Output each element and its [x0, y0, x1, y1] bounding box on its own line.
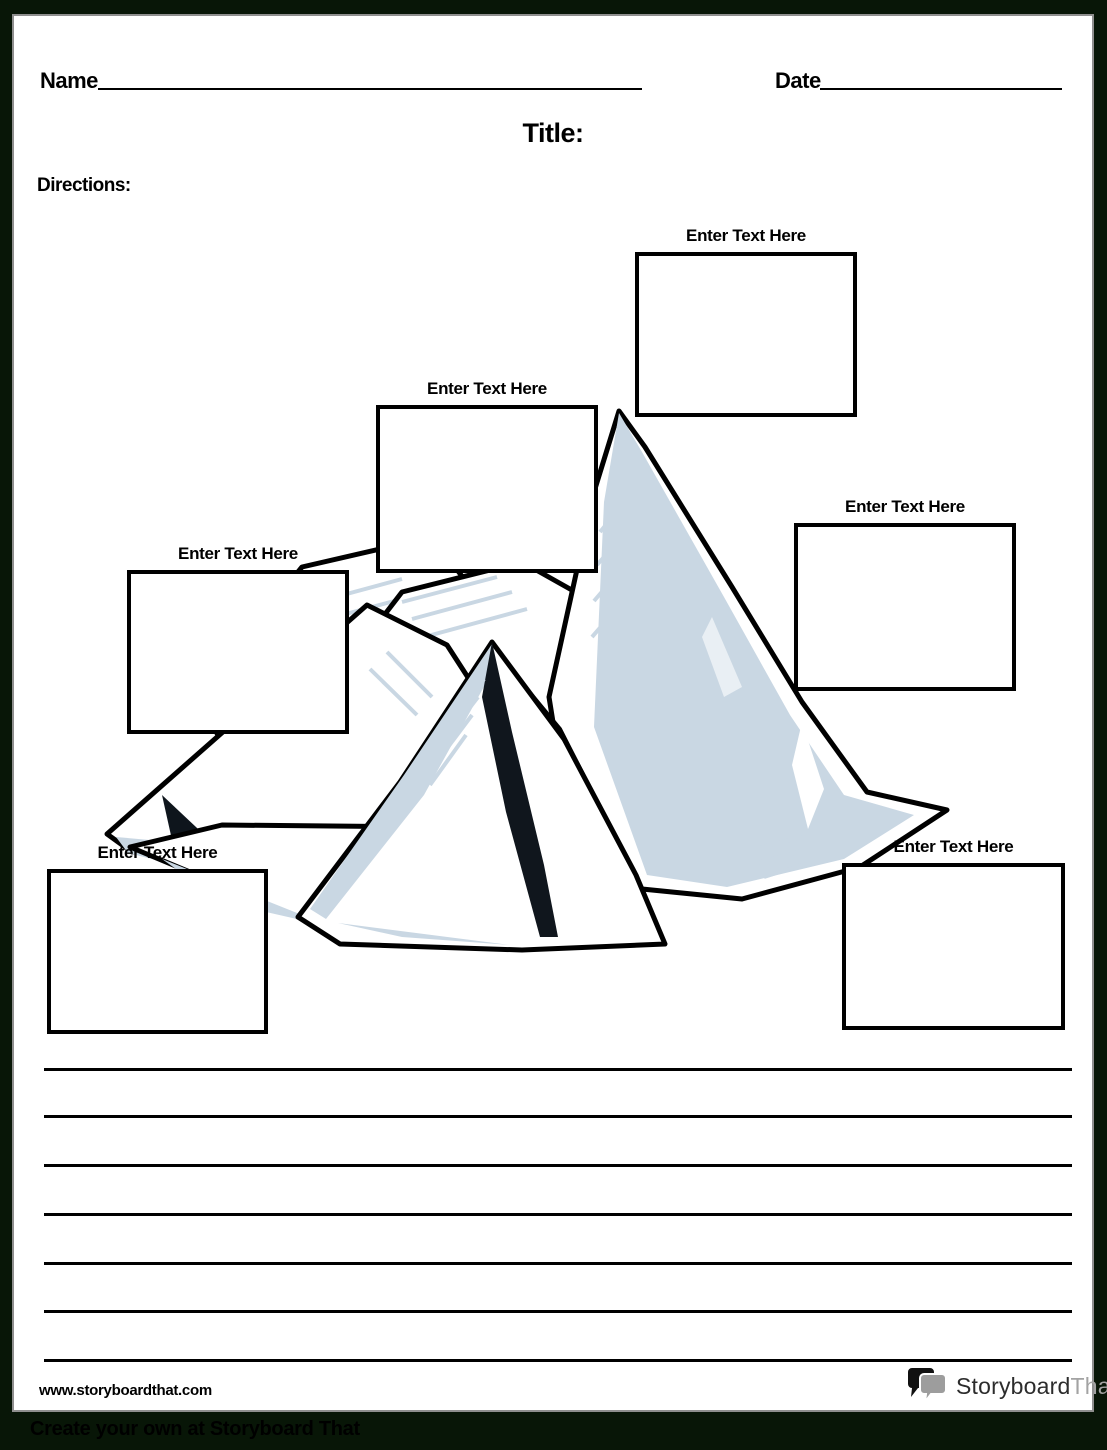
bottom-banner-text: Create your own at Storyboard That	[30, 1418, 360, 1441]
bottom-banner: Create your own at Storyboard That	[0, 1412, 1107, 1450]
writing-line	[44, 1262, 1072, 1265]
date-label: Date	[775, 68, 821, 94]
text-box-label: Enter Text Here	[794, 497, 1016, 517]
writing-line	[44, 1068, 1072, 1071]
logo-text-storyboard: Storyboard	[956, 1373, 1071, 1399]
text-box-label: Enter Text Here	[127, 544, 349, 564]
text-box-label: Enter Text Here	[47, 843, 268, 863]
name-underline[interactable]	[98, 88, 642, 90]
text-box-upper-middle[interactable]	[376, 405, 598, 573]
date-underline[interactable]	[820, 88, 1062, 90]
text-box-right[interactable]	[794, 523, 1016, 691]
directions-label: Directions:	[37, 175, 131, 197]
writing-line	[44, 1310, 1072, 1313]
worksheet-page: Name Date Title: Directions:	[12, 14, 1094, 1412]
text-box-top-center[interactable]	[635, 252, 857, 417]
page-title: Title:	[14, 118, 1092, 149]
text-box-label: Enter Text Here	[635, 226, 857, 246]
text-box-label: Enter Text Here	[842, 837, 1065, 857]
writing-line	[44, 1213, 1072, 1216]
speech-bubbles-icon	[906, 1364, 950, 1408]
text-box-middle-left[interactable]	[127, 570, 349, 734]
text-box-bottom-left[interactable]	[47, 869, 268, 1034]
worksheet-root: { "page": { "name_label": "Name", "date_…	[0, 0, 1107, 1450]
text-box-label: Enter Text Here	[376, 379, 598, 399]
storyboardthat-logo[interactable]: StoryboardThat	[906, 1364, 1107, 1408]
footer-url: www.storyboardthat.com	[39, 1382, 212, 1399]
logo-text: StoryboardThat	[956, 1373, 1107, 1400]
text-box-bottom-right[interactable]	[842, 863, 1065, 1030]
writing-line	[44, 1115, 1072, 1118]
name-label: Name	[40, 68, 98, 94]
logo-text-that: That	[1071, 1373, 1107, 1399]
writing-line	[44, 1359, 1072, 1362]
writing-line	[44, 1164, 1072, 1167]
